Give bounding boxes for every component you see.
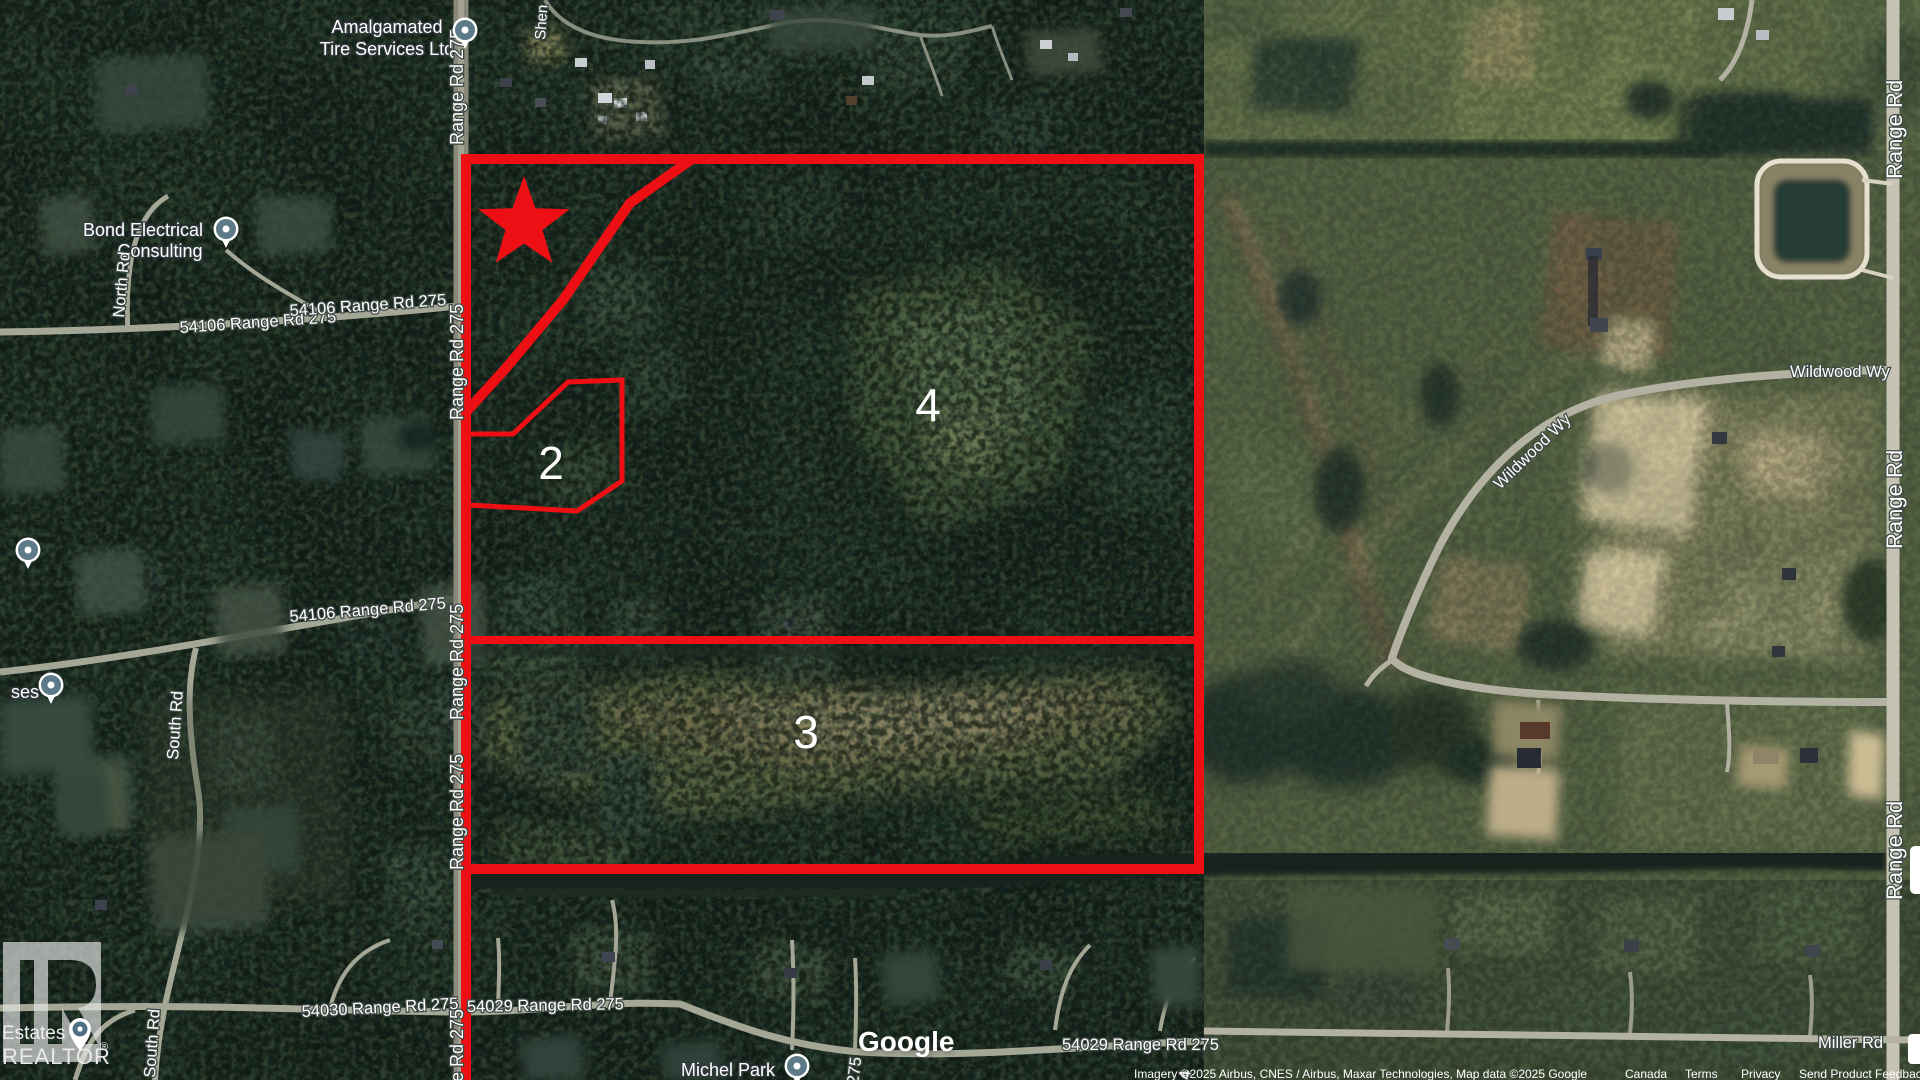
svg-text:Range Rd: Range Rd (1882, 80, 1907, 179)
svg-text:REALTOR: REALTOR (2, 1044, 111, 1069)
svg-text:275: 275 (844, 1056, 865, 1080)
svg-text:Michel Park: Michel Park (681, 1060, 776, 1080)
svg-text:Estates: Estates (2, 1023, 65, 1044)
svg-text:Imagery ©2025 Airbus, CNES / A: Imagery ©2025 Airbus, CNES / Airbus, Max… (1134, 1067, 1587, 1080)
svg-text:Range Rd: Range Rd (1882, 450, 1907, 549)
svg-text:Range Rd 275: Range Rd 275 (447, 304, 467, 420)
svg-text:Bond Electrical: Bond Electrical (83, 220, 203, 240)
svg-text:4: 4 (915, 379, 941, 431)
svg-text:Amalgamated: Amalgamated (331, 17, 442, 37)
svg-text:Shen: Shen (532, 4, 551, 40)
svg-text:Range Rd 275: Range Rd 275 (447, 754, 467, 870)
svg-text:Google: Google (858, 1026, 954, 1057)
svg-text:Canada: Canada (1625, 1067, 1667, 1080)
svg-text:Privacy: Privacy (1741, 1067, 1780, 1080)
svg-text:e Rd 275: e Rd 275 (447, 1009, 467, 1080)
svg-text:Tire Services Ltd: Tire Services Ltd (320, 39, 454, 59)
svg-text:Terms: Terms (1685, 1067, 1718, 1080)
svg-text:Wildwood Wy: Wildwood Wy (1790, 363, 1891, 381)
svg-text:Miller Rd: Miller Rd (1818, 1034, 1883, 1052)
svg-text:®: ® (100, 1041, 108, 1053)
svg-text:54029 Range Rd 275: 54029 Range Rd 275 (1062, 1036, 1219, 1054)
svg-text:54029 Range Rd 275: 54029 Range Rd 275 (467, 995, 624, 1016)
svg-text:3: 3 (793, 706, 819, 758)
svg-text:Range Rd: Range Rd (1882, 801, 1907, 900)
svg-text:ses: ses (11, 682, 39, 702)
svg-text:Send Product Feedback: Send Product Feedback (1799, 1067, 1920, 1080)
svg-text:2: 2 (538, 437, 564, 489)
svg-text:Range Rd 275: Range Rd 275 (447, 604, 467, 720)
